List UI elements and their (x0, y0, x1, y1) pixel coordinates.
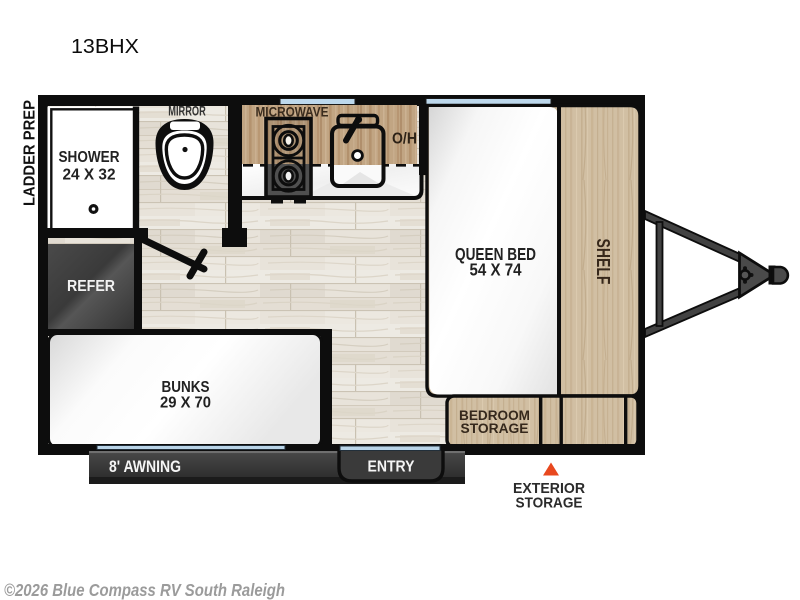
svg-text:SHOWER: SHOWER (59, 149, 120, 166)
svg-text:O/H: O/H (392, 131, 417, 148)
svg-text:SHELF: SHELF (593, 239, 613, 285)
svg-text:8' AWNING: 8' AWNING (109, 458, 181, 476)
svg-text:MIRROR: MIRROR (168, 103, 206, 119)
svg-text:54 X 74: 54 X 74 (470, 260, 522, 280)
svg-text:BUNKS: BUNKS (162, 379, 210, 396)
svg-text:REFER: REFER (67, 278, 115, 295)
svg-text:STORAGE: STORAGE (516, 495, 583, 512)
svg-text:©2026 Blue Compass RV South Ra: ©2026 Blue Compass RV South Raleigh (4, 580, 285, 600)
svg-text:29 X 70: 29 X 70 (160, 395, 211, 412)
svg-text:ENTRY: ENTRY (368, 459, 416, 476)
svg-text:24 X 32: 24 X 32 (63, 167, 116, 184)
svg-text:13BHX: 13BHX (71, 36, 139, 58)
svg-text:LADDER PREP: LADDER PREP (22, 100, 39, 206)
svg-text:STORAGE: STORAGE (461, 421, 529, 436)
